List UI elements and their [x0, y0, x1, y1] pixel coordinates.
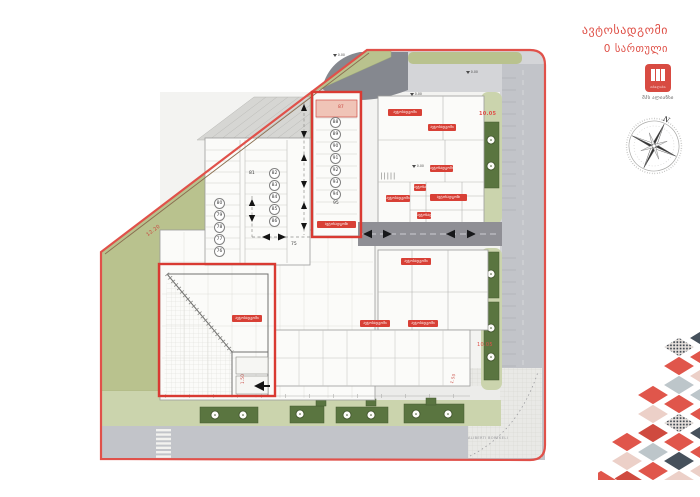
dimension-label: 10.05: [477, 343, 493, 348]
street-label: ALIBERTI BORTKELI: [468, 436, 508, 440]
room-label: ავტოსადგომი: [360, 320, 390, 327]
level-mark-icon: [333, 54, 337, 57]
logo-bar: [661, 69, 665, 81]
stall-number: 93: [330, 177, 341, 188]
room-label: ავტოსადგომი: [417, 212, 431, 219]
level-mark: 0.00: [333, 54, 345, 57]
stall-number-pink: 87: [338, 106, 344, 111]
room-label: ავტოსადგომი: [401, 258, 431, 265]
stall-number: 95: [333, 202, 339, 207]
room-label: ავტოსადგომი: [430, 194, 467, 201]
stall-number: 94: [330, 189, 341, 200]
level-mark: 0.00: [412, 165, 424, 168]
logo-caption: შპს ალიანსი: [630, 96, 686, 101]
stall-number: 79: [214, 210, 225, 221]
building-mid-right: [378, 250, 488, 330]
stall-number: 91: [330, 153, 341, 164]
stall-number: 90: [330, 141, 341, 152]
stall-number: 82: [269, 168, 280, 179]
plan-sheet: ავტოსადგომი 0 სართული თბილისი შპს ალიანს…: [0, 0, 700, 497]
level-mark-icon: [410, 93, 414, 96]
room-label: ავტოსადგომი: [430, 165, 453, 172]
room-label: ავტოსადგომი: [232, 315, 262, 322]
room-label: ავტოსადგომი: [317, 221, 356, 228]
stall-number: 89: [330, 129, 341, 140]
stall-number: 85: [269, 204, 280, 215]
stall-number: 76: [214, 246, 225, 257]
logo-inner-text: თბილისი: [645, 85, 671, 89]
sheet-subtitle: 0 სართული: [520, 43, 668, 55]
stall-number: 92: [330, 165, 341, 176]
room-label: ავტოსადგომი: [386, 195, 410, 202]
dimension-label: 1.50: [241, 374, 245, 384]
room-label: ავტოსადგომი: [388, 109, 422, 116]
room-label: ავტოსადგომი: [408, 320, 438, 327]
road-band: [358, 222, 502, 246]
stall-number: 77: [214, 234, 225, 245]
logo-bar: [651, 69, 655, 81]
stall-number: 81: [249, 172, 255, 177]
pink-stall: [316, 100, 357, 117]
stall-number: 88: [330, 117, 341, 128]
developer-logo-icon: თბილისი: [645, 64, 671, 92]
level-mark-icon: [466, 71, 470, 74]
stall-number: 78: [214, 222, 225, 233]
decorative-cube-pattern: [598, 330, 700, 480]
logo-bar: [656, 69, 660, 81]
stall-number: 75: [291, 243, 297, 248]
compass-north-label: N: [661, 114, 672, 125]
compass-rose-icon: N: [621, 113, 687, 179]
site-plan-drawing: [0, 0, 700, 497]
room-label: ავტოსადგომი: [414, 184, 426, 191]
building-top-stall-column: [313, 92, 360, 236]
dimension-label: 10.05: [479, 112, 496, 117]
stall-number: 86: [269, 216, 280, 227]
level-mark: 0.00: [410, 93, 422, 96]
building-bottom-row: [275, 330, 470, 386]
stall-number: 84: [269, 192, 280, 203]
stall-number: 80: [214, 198, 225, 209]
sheet-title: ავტოსადგომი: [520, 23, 668, 37]
room-label: ავტოსადგომი: [428, 124, 456, 131]
level-mark: 0.00: [466, 71, 478, 74]
level-mark-icon: [412, 165, 416, 168]
stall-number: 83: [269, 180, 280, 191]
